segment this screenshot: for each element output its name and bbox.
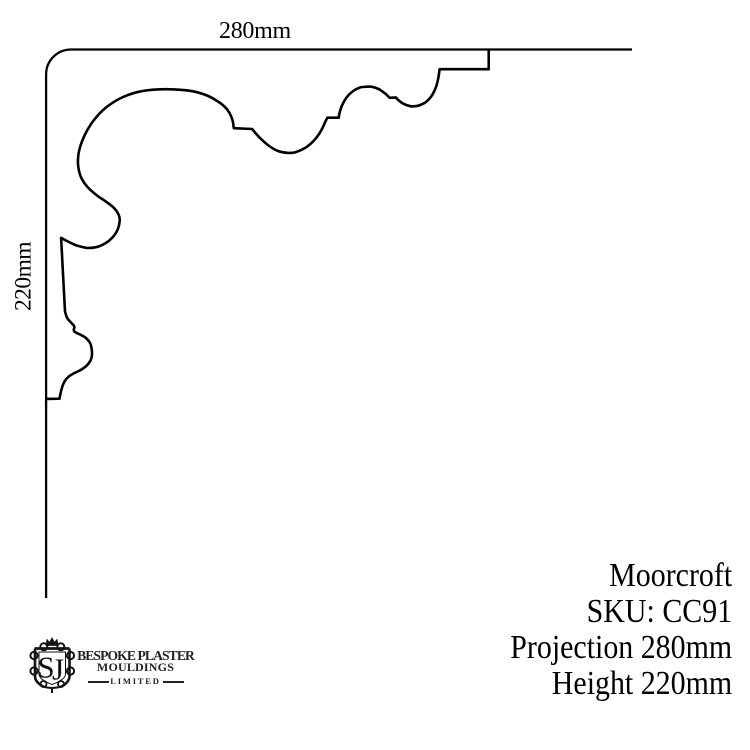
svg-text:J: J [51,651,63,686]
